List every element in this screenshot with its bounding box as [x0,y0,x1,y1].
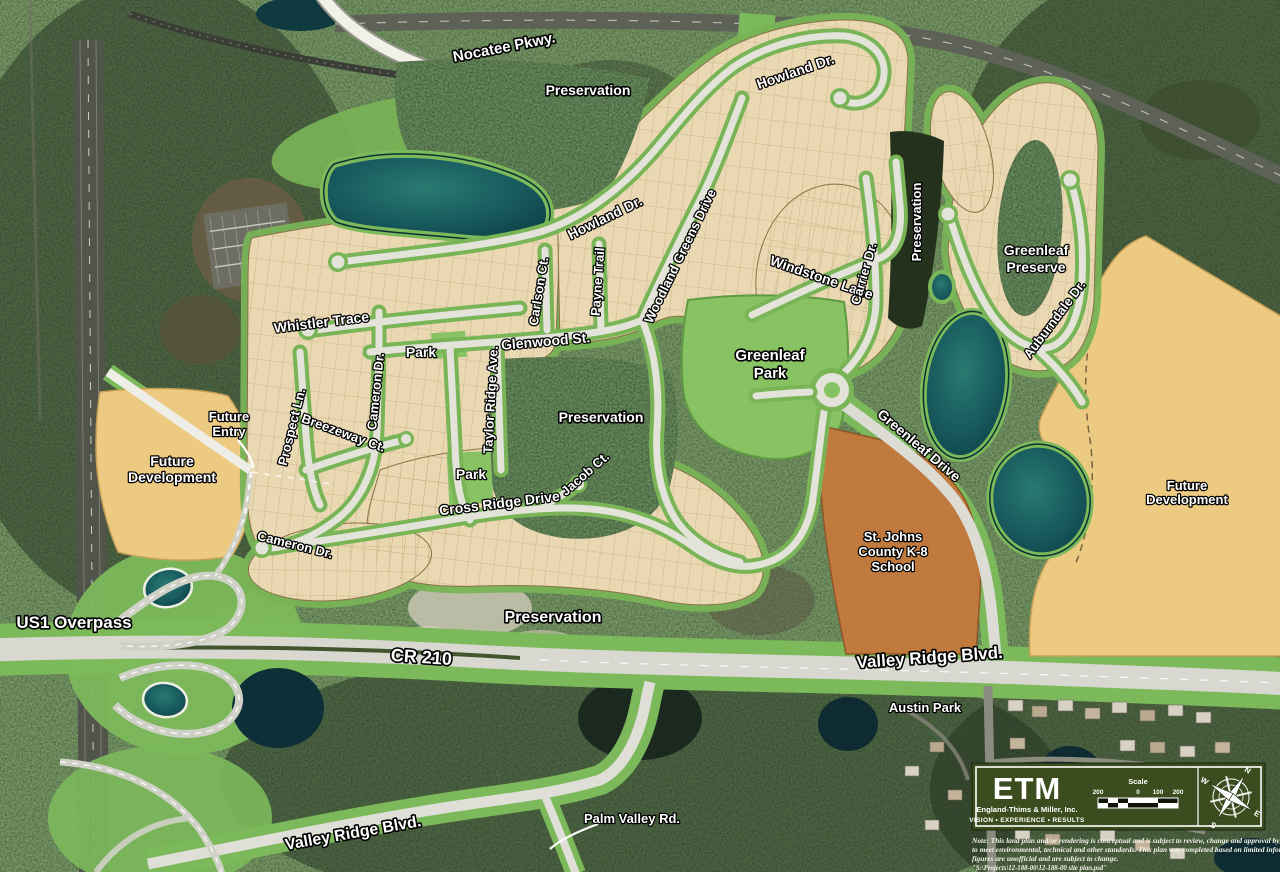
label-future-entry-2: Entry [212,424,246,439]
pond-preserve-small [930,272,954,302]
label-cr-210: CR 210 [390,645,452,669]
pond-austin-1 [818,697,878,751]
label-school-3: School [871,559,914,574]
label-preservation-center: Preservation [559,409,644,425]
note-file-path: "S:\Projects\12-188-00\12-188-00 site pl… [972,865,1107,872]
label-preservation-top: Preservation [546,82,631,98]
label-future-dev-left-2: Development [128,469,216,485]
svg-text:100: 100 [1153,789,1164,796]
label-future-entry-1: Future [209,409,249,424]
label-park-upper: Park [406,344,437,360]
svg-text:0: 0 [1136,789,1140,796]
label-austin-park: Austin Park [889,700,962,715]
label-school-2: County K-8 [858,544,927,559]
label-future-dev-right-1: Future [1167,478,1207,493]
label-preservation-right: Preservation [909,183,924,262]
label-greenleaf-park-1: Greenleaf [735,347,805,364]
label-greenleaf-preserve-2: Preserve [1006,259,1065,275]
svg-text:200: 200 [1093,789,1104,796]
etm-tagline: VISION • EXPERIENCE • RESULTS [969,817,1085,824]
label-palm-valley-rd: Palm Valley Rd. [584,811,680,826]
etm-company: England-Thims & Miller, Inc. [976,805,1077,814]
label-future-dev-right-2: Development [1146,492,1228,507]
label-us1-overpass: US1 Overpass [16,613,131,632]
etm-logo: ETM [993,771,1061,806]
label-greenleaf-park-2: Park [754,365,787,382]
svg-text:200: 200 [1173,789,1184,796]
label-future-dev-left-1: Future [150,453,194,469]
note-line-1: Note: This land plan and/or rendering is… [971,836,1280,845]
pond-cr210-south [232,668,324,748]
note-line-3: figures are unofficial and are subject t… [972,854,1119,863]
label-park-lower: Park [456,466,487,482]
label-greenleaf-preserve-1: Greenleaf [1004,242,1069,258]
svg-text:Scale: Scale [1128,777,1148,786]
label-preservation-bottom: Preservation [505,609,602,626]
site-plan-map: Nocatee Pkwy. Preservation Howland Dr. H… [0,0,1280,872]
note-line-2: to meet environmental, technical and oth… [972,845,1280,854]
label-school-1: St. Johns [864,529,923,544]
